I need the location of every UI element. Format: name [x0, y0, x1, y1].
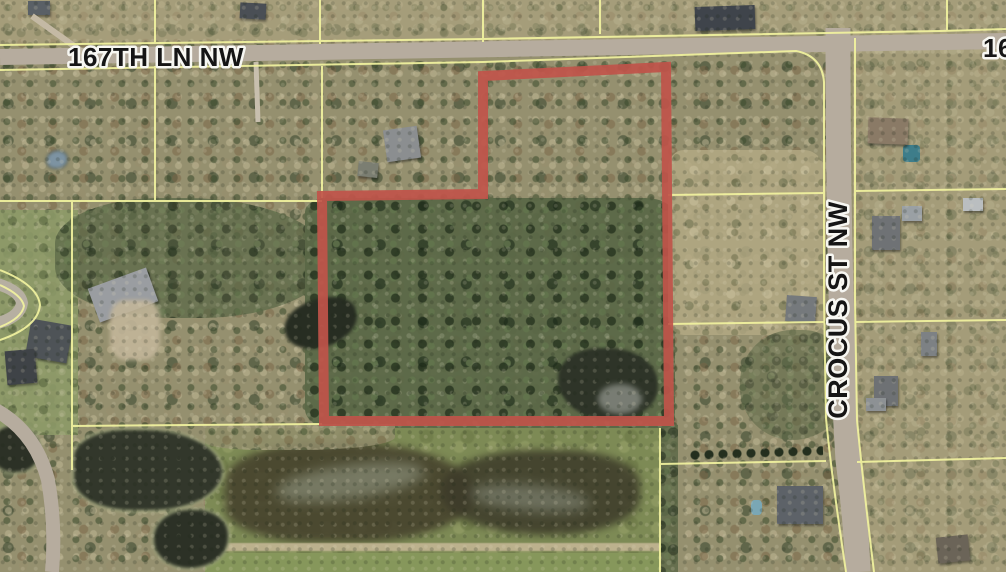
driveway-mid [256, 62, 258, 122]
aerial-map-canvas[interactable]: 167TH LN NW CROCUS ST NW 16 [0, 0, 1006, 572]
street-label-partial-right-edge: 16 [983, 33, 1006, 63]
parcel-line [855, 320, 1006, 322]
parcel-line [855, 189, 1006, 191]
parcel-line [72, 424, 322, 426]
parcel-line [660, 461, 826, 464]
street-label-crocus-st-nw: CROCUS ST NW [823, 201, 853, 419]
selected-parcel-boundary[interactable] [322, 67, 669, 421]
map-overlay-graphics: 167TH LN NW CROCUS ST NW 16 [0, 0, 1006, 572]
road-culdesac-bulb [0, 283, 22, 324]
parcel-line [0, 51, 846, 572]
parcel-line [668, 193, 824, 195]
parcel-line [668, 322, 824, 324]
road-bottom-left-curve [0, 408, 53, 572]
parcel-line [857, 458, 1006, 462]
street-label-167th-ln-nw: 167TH LN NW [68, 42, 244, 72]
